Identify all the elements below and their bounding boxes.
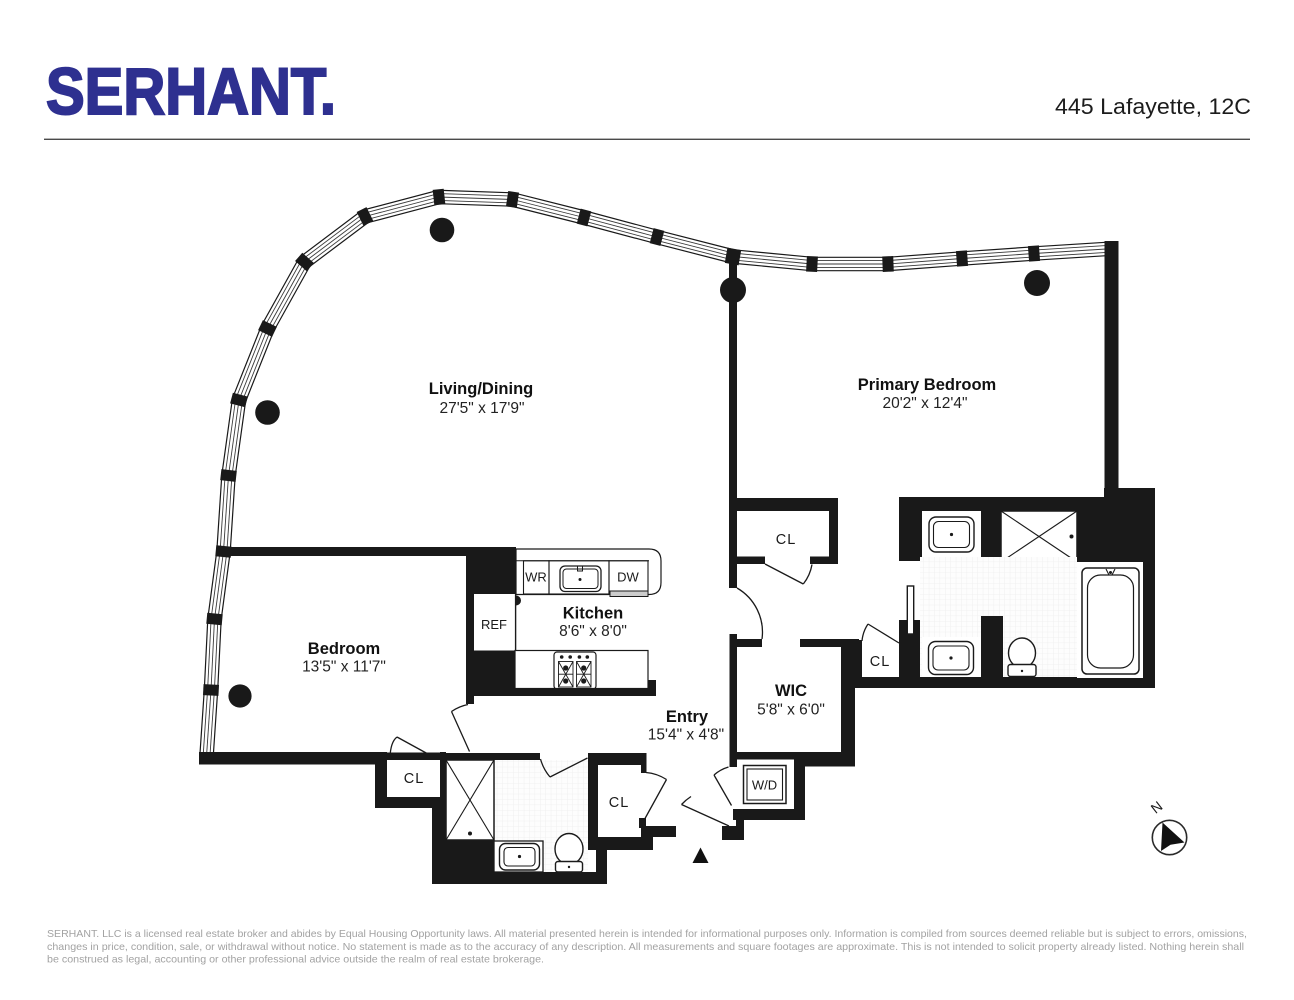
svg-text:WIC: WIC	[775, 682, 807, 700]
svg-text:8'6" x 8'0": 8'6" x 8'0"	[559, 623, 627, 640]
svg-text:5'8" x 6'0": 5'8" x 6'0"	[757, 702, 825, 719]
svg-text:27'5" x 17'9": 27'5" x 17'9"	[439, 400, 524, 417]
svg-text:20'2" x 12'4": 20'2" x 12'4"	[882, 395, 967, 412]
svg-text:Living/Dining: Living/Dining	[429, 380, 534, 398]
svg-text:CL: CL	[776, 532, 797, 548]
svg-text:Bedroom: Bedroom	[308, 640, 380, 658]
svg-text:WR: WR	[525, 570, 547, 585]
svg-text:be construed as legal, account: be construed as legal, accounting or oth…	[47, 955, 544, 966]
svg-text:SERHANT.: SERHANT.	[46, 54, 336, 128]
svg-text:REF: REF	[481, 617, 507, 632]
svg-text:changes in price, condition, s: changes in price, condition, sale, or wi…	[47, 942, 1244, 953]
svg-text:CL: CL	[870, 654, 891, 670]
svg-text:Kitchen: Kitchen	[563, 605, 624, 623]
svg-text:13'5" x 11'7": 13'5" x 11'7"	[302, 659, 386, 676]
svg-text:Entry: Entry	[666, 708, 709, 726]
svg-text:CL: CL	[404, 771, 425, 787]
svg-text:W/D: W/D	[752, 778, 777, 793]
svg-text:SERHANT. LLC is a licensed rea: SERHANT. LLC is a licensed real estate b…	[47, 929, 1247, 940]
svg-text:445 Lafayette, 12C: 445 Lafayette, 12C	[1055, 94, 1251, 119]
svg-text:15'4" x 4'8": 15'4" x 4'8"	[648, 727, 724, 744]
svg-text:CL: CL	[609, 795, 630, 811]
svg-text:Primary Bedroom: Primary Bedroom	[858, 376, 996, 394]
svg-text:DW: DW	[617, 570, 639, 585]
